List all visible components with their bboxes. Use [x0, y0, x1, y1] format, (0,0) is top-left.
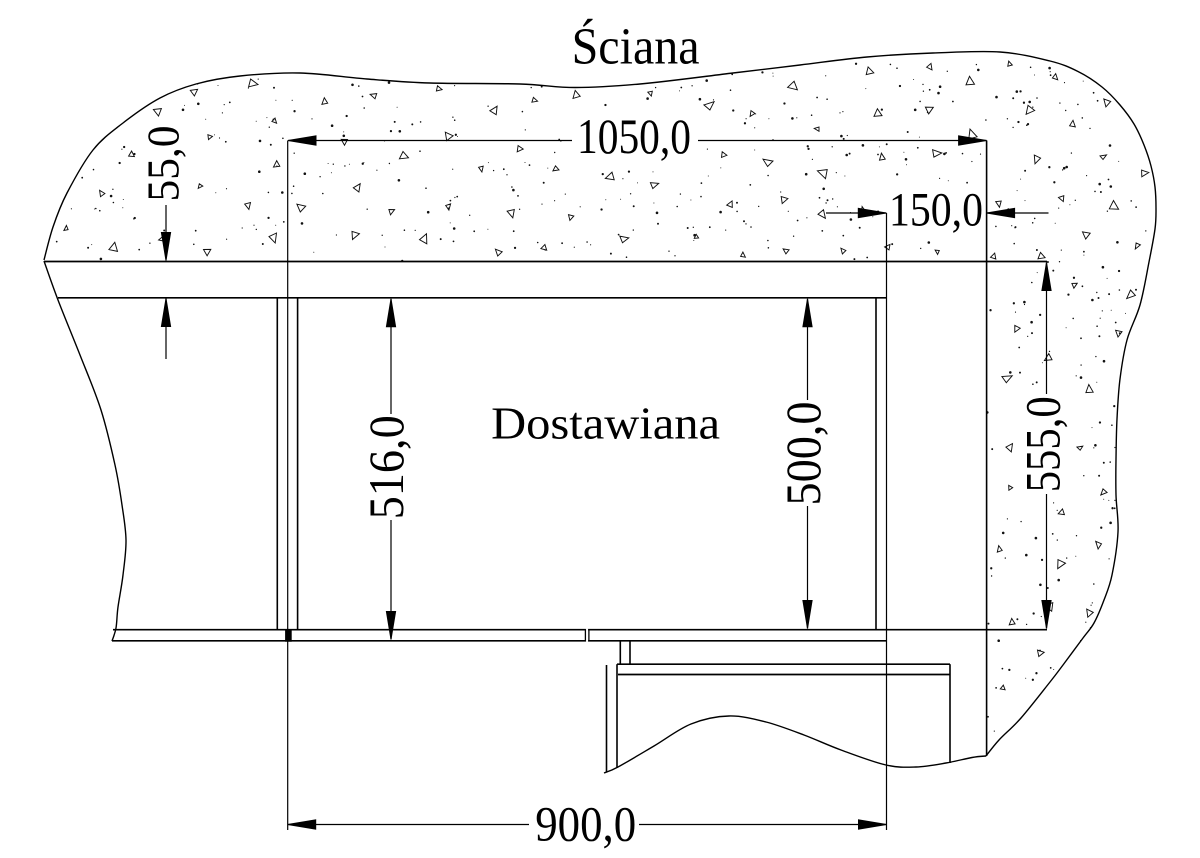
svg-text:500,0: 500,0 — [775, 402, 831, 506]
svg-text:Dostawiana: Dostawiana — [491, 399, 720, 449]
svg-text:55,0: 55,0 — [138, 126, 189, 202]
svg-text:516,0: 516,0 — [358, 415, 414, 519]
svg-text:1050,0: 1050,0 — [577, 108, 691, 164]
svg-text:150,0: 150,0 — [889, 184, 983, 237]
svg-text:555,0: 555,0 — [1015, 396, 1071, 492]
svg-text:Ściana: Ściana — [572, 18, 700, 76]
svg-text:900,0: 900,0 — [535, 796, 636, 852]
